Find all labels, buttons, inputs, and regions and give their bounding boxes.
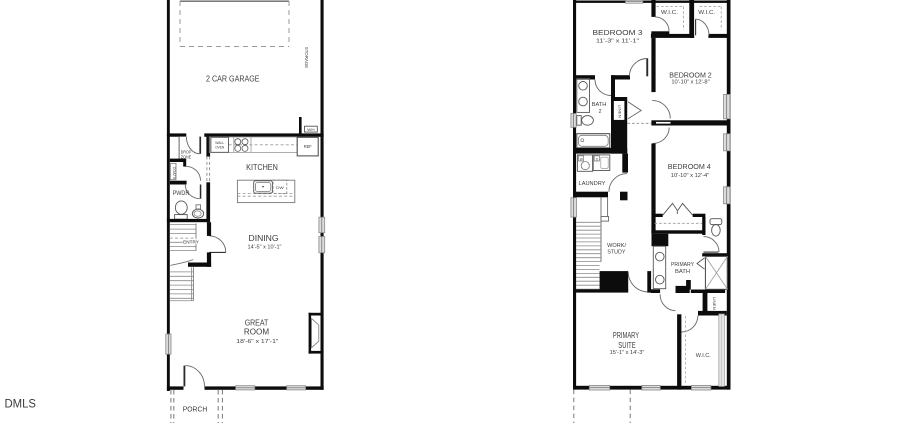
svg-text:LINEN: LINEN [618,105,622,119]
svg-text:REF: REF [304,144,312,149]
svg-text:LAUNDRY: LAUNDRY [579,181,606,187]
svg-text:2 CAR GARAGE: 2 CAR GARAGE [206,74,260,83]
svg-text:WALL: WALL [215,141,224,145]
svg-text:PRIMARY: PRIMARY [671,262,695,268]
svg-text:STORAGE: STORAGE [304,47,309,69]
svg-text:DINING: DINING [249,234,279,243]
svg-text:18'-6" x 17'-1": 18'-6" x 17'-1" [236,339,278,345]
svg-text:COATS: COATS [172,167,176,180]
svg-text:11'-3" x 11'-1": 11'-3" x 11'-1" [596,38,639,44]
svg-text:GREAT: GREAT [245,318,269,327]
svg-text:15'-1" x 14'-3": 15'-1" x 14'-3" [610,350,645,356]
svg-text:10'-10" x 12'-8": 10'-10" x 12'-8" [671,80,709,86]
svg-text:W.I.C.: W.I.C. [696,353,711,359]
svg-text:DMLS: DMLS [5,398,37,411]
svg-text:ROOM: ROOM [244,328,269,337]
svg-text:W.I.C.: W.I.C. [661,10,678,16]
svg-text:BEDROOM 2: BEDROOM 2 [669,70,712,79]
svg-text:PRIMARY: PRIMARY [613,331,640,340]
svg-text:KITCHEN: KITCHEN [246,163,278,172]
svg-text:10'-10" x 12'-4": 10'-10" x 12'-4" [671,173,709,179]
svg-text:WH: WH [307,127,315,132]
svg-text:SUITE: SUITE [618,341,636,350]
svg-text:LINEN: LINEN [712,297,716,311]
svg-text:ZONE: ZONE [181,154,192,159]
svg-text:W.I.C.: W.I.C. [698,10,715,16]
svg-text:ENTRY: ENTRY [183,239,199,244]
svg-text:PORCH: PORCH [183,405,208,414]
svg-text:2: 2 [599,109,602,115]
svg-text:BATH: BATH [592,102,607,108]
svg-text:WORK/: WORK/ [607,243,626,249]
svg-text:DW: DW [276,185,284,190]
svg-text:BEDROOM 4: BEDROOM 4 [668,162,711,171]
svg-text:PWDR: PWDR [173,191,190,197]
svg-text:W: W [580,157,583,161]
svg-text:STUDY: STUDY [607,250,625,256]
svg-text:BEDROOM 3: BEDROOM 3 [593,28,643,37]
svg-text:14'-5" x 10'-1": 14'-5" x 10'-1" [248,244,282,250]
svg-text:BATH: BATH [675,269,690,275]
svg-text:OVEN: OVEN [215,145,224,149]
